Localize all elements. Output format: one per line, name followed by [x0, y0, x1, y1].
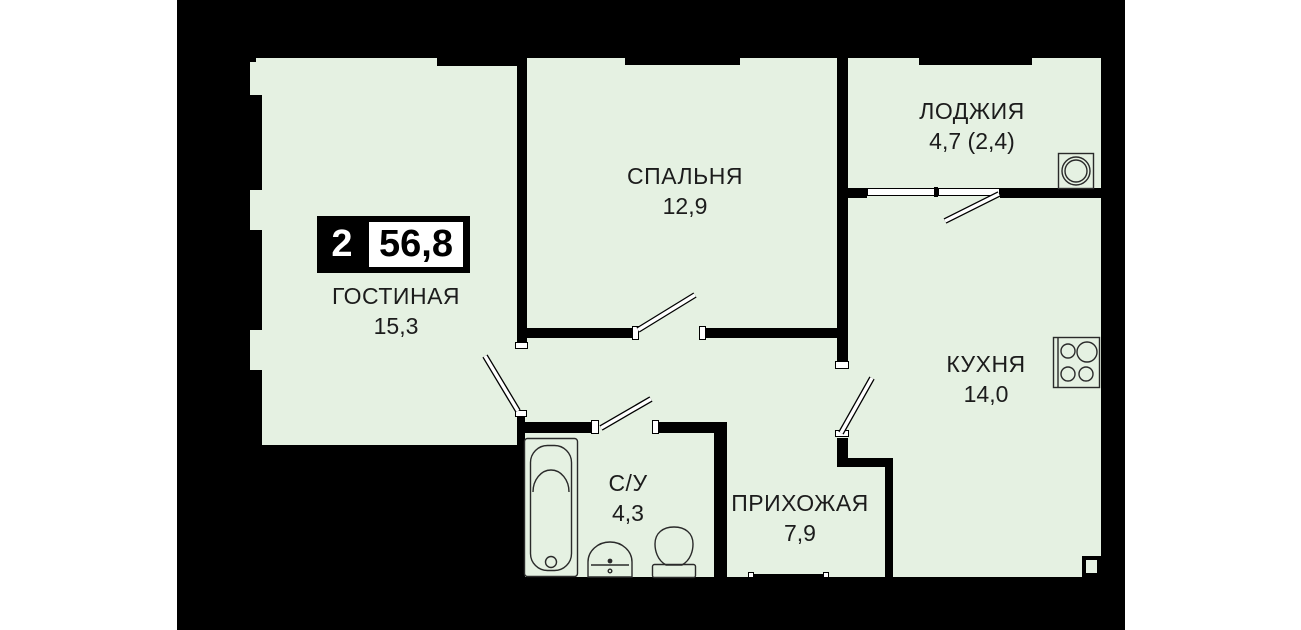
room-area: 4,3 [608, 498, 647, 528]
balcony-door-sill [939, 189, 1000, 196]
room-area: 14,0 [946, 379, 1025, 409]
room-name: СПАЛЬНЯ [627, 161, 743, 191]
total-area: 56,8 [367, 220, 465, 269]
label-bedroom: СПАЛЬНЯ 12,9 [627, 161, 743, 221]
door-swing-icon [485, 194, 999, 433]
room-name: КУХНЯ [946, 349, 1025, 379]
bathtub-icon [525, 439, 578, 577]
room-name: ЛОДЖИЯ [919, 96, 1024, 126]
room-name: ГОСТИНАЯ [332, 281, 460, 311]
door-jamb [824, 573, 829, 578]
door-jamb [653, 421, 659, 434]
label-hallway: ПРИХОЖАЯ 7,9 [731, 488, 869, 548]
sink-icon [588, 542, 632, 577]
plan-linework [177, 0, 1125, 630]
stove-icon [1054, 338, 1100, 388]
area-badge: 2 56,8 [317, 216, 470, 273]
room-area: 15,3 [332, 311, 460, 341]
label-living: ГОСТИНАЯ 15,3 [332, 281, 460, 341]
room-area: 4,7 (2,4) [919, 126, 1024, 156]
loggia-washer-icon [1059, 154, 1094, 189]
floorplan-canvas: ЛОДЖИЯ 4,7 (2,4) СПАЛЬНЯ 12,9 ГОСТИНАЯ 1… [177, 0, 1125, 630]
room-name: С/У [608, 468, 647, 498]
window-divider [934, 187, 938, 197]
vent-duct-icon [1084, 558, 1099, 575]
door-jamb [516, 343, 528, 349]
door-jamb [749, 573, 754, 578]
door-jamb [592, 421, 599, 434]
room-area: 12,9 [627, 191, 743, 221]
label-bathroom: С/У 4,3 [608, 468, 647, 528]
label-loggia: ЛОДЖИЯ 4,7 (2,4) [919, 96, 1024, 156]
door-jamb [836, 362, 849, 369]
label-kitchen: КУХНЯ 14,0 [946, 349, 1025, 409]
toilet-icon [653, 527, 696, 578]
door-jamb [700, 327, 706, 340]
window-icon [868, 189, 935, 196]
rooms-count: 2 [317, 223, 367, 266]
room-area: 7,9 [731, 518, 869, 548]
floorplan-page: ЛОДЖИЯ 4,7 (2,4) СПАЛЬНЯ 12,9 ГОСТИНАЯ 1… [0, 0, 1301, 630]
room-name: ПРИХОЖАЯ [731, 488, 869, 518]
